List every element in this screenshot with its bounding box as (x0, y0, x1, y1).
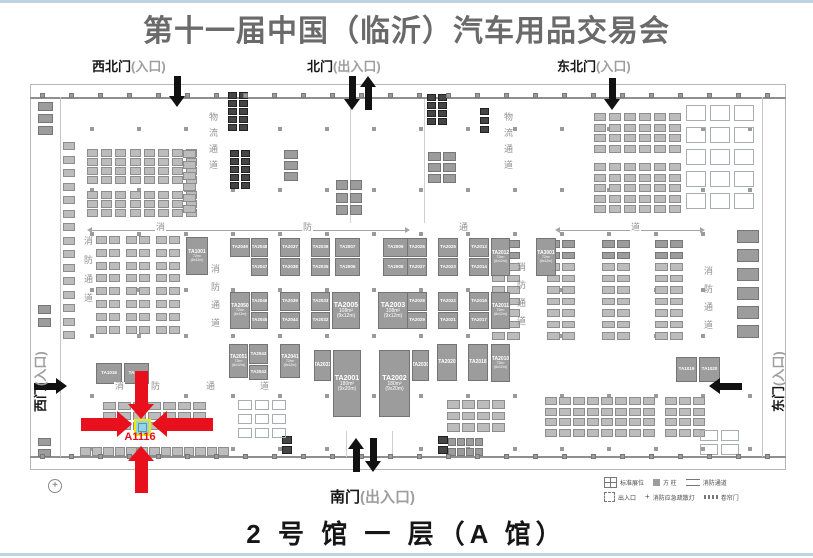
booth-block-cell (101, 200, 112, 208)
booth-block-cell (139, 326, 150, 334)
booth-block-cell (617, 240, 630, 248)
arrow-shaft (365, 87, 372, 110)
arrow-shaft (353, 449, 360, 472)
legend-item: 卷帘门 (704, 493, 739, 502)
booth-block-cell (594, 145, 606, 153)
booth-block-cell (594, 184, 606, 192)
column-marker (372, 188, 376, 192)
booth-block-cell (457, 448, 465, 456)
booth-block-cell (734, 193, 754, 209)
booth-id: TA2047 (252, 265, 268, 270)
booth-block-cell (115, 200, 126, 208)
booth-block-cell (562, 309, 575, 317)
booth-block-cell (602, 286, 615, 294)
booth-block-cell (282, 446, 292, 454)
booth-block-cell (617, 275, 630, 283)
arrow-head (360, 76, 376, 87)
booth-size: (6x12m) (494, 260, 507, 264)
booth-block-cell (169, 287, 180, 295)
booth-block-cell (172, 447, 183, 456)
booth-block-cell (547, 286, 560, 294)
booth-block-cell (562, 275, 575, 283)
booth-block-cell (284, 161, 298, 170)
booth-block-cell (228, 100, 237, 107)
booth-block-cell (178, 402, 191, 410)
booth-block-cell (96, 287, 107, 295)
gate-name: 南门 (330, 489, 360, 506)
booth-block-cell (448, 438, 456, 446)
booth-block-cell (126, 262, 137, 270)
column-marker (325, 188, 329, 192)
column-square-icon (653, 479, 660, 486)
booth-block-cell (654, 205, 666, 213)
booth-block-cell (559, 429, 571, 437)
booth-id: TA2008 (388, 265, 404, 270)
page-title: 第十一届中国（临沂）汽车用品交易会 (0, 6, 813, 50)
booth-block-cell (101, 167, 112, 175)
booth-block-cell (63, 318, 75, 326)
booth-block-cell (272, 400, 286, 410)
booth-block-cell (462, 423, 475, 432)
booth-block-cell (678, 93, 683, 98)
booth-block-cell (228, 92, 237, 99)
entrance-icon (604, 492, 615, 502)
booth-block-cell (38, 318, 51, 327)
booth-block-cell (139, 274, 150, 282)
booth-id: TA2016 (471, 299, 487, 304)
lane-label-char: 通 (458, 223, 469, 232)
column-marker (278, 127, 282, 131)
column-marker (325, 447, 329, 451)
booth-block-cell (670, 240, 683, 248)
booth-block-cell (80, 447, 91, 456)
booth-block-cell (547, 309, 560, 317)
booth-block-cell (156, 236, 167, 244)
booth-block-cell (649, 93, 654, 98)
booth-block-cell (63, 156, 75, 164)
booth-block-cell (594, 174, 606, 182)
lane-label: 消防通道 (515, 262, 528, 338)
booth-block-cell (462, 400, 475, 409)
booth-TA2051: TA205172m²(6x12m) (229, 344, 248, 378)
legend-label: 卷帘门 (721, 493, 739, 502)
booth-block-cell (139, 287, 150, 295)
booth-size: (6x12m) (191, 259, 204, 263)
booth-block-cell (115, 167, 126, 175)
booth-block-cell (545, 429, 557, 437)
booth-block-cell (679, 397, 691, 405)
gate-type: (入口) (771, 351, 786, 386)
booth-block-cell (301, 454, 306, 459)
booth-block-cell (734, 149, 754, 165)
booth-block-cell (330, 93, 335, 98)
booth-block-cell (126, 249, 137, 257)
northeast-gate-label: 东北门(入口) (557, 56, 631, 75)
column-marker (419, 232, 423, 236)
booth-block-cell (617, 286, 630, 294)
booth-block-cell (477, 400, 490, 409)
booth-TA2030: TA2030 (412, 350, 429, 381)
booth-grid-icon (604, 477, 617, 488)
booth-block-cell (169, 262, 180, 270)
booth-block-cell (241, 166, 250, 173)
booth-block-cell (169, 236, 180, 244)
booth-block-cell (643, 429, 655, 437)
booth-block-cell (665, 397, 677, 405)
arrow-shaft (174, 76, 181, 96)
booth-block-cell (103, 447, 114, 456)
booth-id: TA2031 (314, 363, 331, 368)
booth-block-cell (63, 264, 75, 272)
booth-block-cell (649, 454, 654, 459)
east-inner-wall (762, 97, 763, 457)
booth-block-cell (545, 397, 557, 405)
booth-block-cell (443, 174, 456, 183)
booth-block-cell (447, 400, 460, 409)
booth-block-cell (587, 408, 599, 416)
legend-row: 标准展位方 柱消防通道 (604, 477, 794, 488)
booth-id: TA2028 (409, 299, 425, 304)
booth-block-cell (602, 332, 615, 340)
booth-block-cell (38, 305, 51, 314)
booth-block-cell (620, 93, 625, 98)
booth-block-cell (169, 326, 180, 334)
legend-item: 标准展位 (604, 477, 644, 488)
booth-id: TA2039 (282, 299, 298, 304)
booth-TA2002: TA2002180m²(9x20m) (379, 350, 410, 417)
booth-block-cell (101, 209, 112, 217)
booth-id: TA2033 (313, 299, 329, 304)
booth-block-cell (601, 408, 613, 416)
booth-block-cell (629, 429, 641, 437)
booth-TA2044: TA2044 (280, 312, 300, 329)
booth-block-cell (130, 176, 141, 184)
booth-block-cell (573, 429, 585, 437)
booth-block-cell (172, 200, 183, 208)
booth-block-cell (669, 124, 681, 132)
booth-block-cell (130, 200, 141, 208)
booth-block-cell (169, 300, 180, 308)
booth-block-cell (639, 113, 651, 121)
booth-block-cell (101, 158, 112, 166)
northwest-gate-label: 西北门(入口) (92, 56, 166, 75)
booth-block-cell (617, 263, 630, 271)
booth-block-cell (609, 134, 621, 142)
booth-TA2048: TA2048 (251, 238, 268, 257)
booth-TA2006: TA2006 (335, 258, 360, 276)
column-marker (748, 188, 752, 192)
east-gate-label: 东门(入口) (768, 351, 787, 412)
booth-block-cell (243, 93, 248, 98)
booth-TA2035: TA2035 (311, 258, 330, 276)
column-marker (372, 334, 376, 338)
booth-block-cell (591, 93, 596, 98)
booth-block-cell (96, 326, 107, 334)
lane-label: 消防通道 (209, 264, 222, 340)
booth-block-cell (669, 174, 681, 182)
gate-name: 东北门 (557, 59, 596, 74)
booth-block-cell (163, 402, 176, 410)
booth-TA2028: TA2028 (407, 292, 427, 311)
booth-block-cell (654, 195, 666, 203)
booth-block-cell (438, 110, 447, 117)
booth-block-cell (101, 149, 112, 157)
booth-block-cell (629, 408, 641, 416)
column-marker (325, 127, 329, 131)
booth-block-cell (183, 205, 196, 213)
booth-block-cell (609, 113, 621, 121)
booth-block-cell (63, 142, 75, 150)
booth-block-cell (183, 150, 196, 158)
booth-block-cell (587, 429, 599, 437)
booth-block-cell (87, 191, 98, 199)
gate-arrow-up (348, 438, 365, 472)
column-marker (231, 334, 235, 338)
booth-block-cell (183, 194, 196, 202)
booth-block-cell (158, 167, 169, 175)
booth-block-cell (139, 249, 150, 257)
column-marker (372, 232, 376, 236)
column-marker (466, 334, 470, 338)
booth-block-cell (96, 274, 107, 282)
booth-block-cell (475, 93, 480, 98)
floor-plan-page: 第十一届中国（临沂）汽车用品交易会 西北门(入口) 北门(出入口) 东北门(入口… (0, 0, 813, 558)
booth-block-cell (643, 408, 655, 416)
legend-label: 消防通道 (703, 478, 727, 487)
booth-block-cell (443, 163, 456, 172)
booth-block-cell (109, 287, 120, 295)
booth-block-cell (156, 313, 167, 321)
booth-block-cell (438, 102, 447, 109)
column-marker (325, 394, 329, 398)
booth-block-cell (40, 454, 45, 459)
booth-block-cell (156, 287, 167, 295)
booth-block-cell (480, 117, 489, 124)
booth-id: TA2044 (282, 318, 298, 323)
north-corridor-line (424, 99, 425, 223)
arrow-shaft (720, 383, 742, 390)
booth-block-cell (629, 418, 641, 426)
booth-block-cell (686, 193, 706, 209)
arrow-head (117, 411, 132, 437)
booth-block-cell (272, 414, 286, 424)
arrow-shaft (167, 418, 213, 431)
booth-block-cell (144, 149, 155, 157)
lane-label-char: 消 (155, 223, 166, 232)
booth-block-cell (615, 429, 627, 437)
booth-size: (9x12m) (337, 314, 355, 319)
booth-block-cell (617, 309, 630, 317)
column-marker (184, 394, 188, 398)
booth-block-cell (655, 332, 668, 340)
booth-block-cell (63, 223, 75, 231)
booth-block-cell (669, 113, 681, 121)
booth-block-cell (214, 93, 219, 98)
column-marker (654, 232, 658, 236)
column-marker (278, 188, 282, 192)
booth-block-cell (617, 332, 630, 340)
arrow-head (365, 461, 381, 472)
booth-block-cell (161, 447, 172, 456)
booth-block-cell (624, 124, 636, 132)
column-marker (466, 394, 470, 398)
booth-block-cell (765, 454, 770, 459)
booth-id: TA2037 (282, 245, 298, 250)
south-gate-label: 南门(出入口) (330, 486, 415, 507)
booth-block-cell (388, 93, 393, 98)
booth-block-cell (98, 454, 103, 459)
booth-TA2018: TA2018 (468, 344, 488, 381)
booth-block-cell (428, 163, 441, 172)
booth-id: TA2021 (440, 318, 456, 323)
booth-TA2001: TA2001180m²(9x20m) (333, 350, 361, 417)
booth-block-cell (545, 408, 557, 416)
lane-label: 物流通道 (502, 112, 515, 180)
booth-id: TA2014 (471, 265, 487, 270)
arrow-shaft (370, 438, 377, 461)
booth-block-cell (63, 237, 75, 245)
booth-block-cell (504, 93, 509, 98)
booth-block-cell (609, 163, 621, 171)
booth-block-cell (238, 428, 252, 438)
booth-block-cell (156, 274, 167, 282)
booth-TA2026: TA2026 (407, 238, 427, 257)
booth-block-cell (115, 191, 126, 199)
column-marker (278, 394, 282, 398)
north-wall (30, 97, 786, 99)
booth-block-cell (241, 174, 250, 181)
booth-block-cell (655, 309, 668, 317)
gate-name: 东门 (771, 386, 786, 412)
booth-block-cell (533, 454, 538, 459)
booth-block-cell (156, 326, 167, 334)
booth-block-cell (195, 447, 206, 456)
booth-id: TA1019 (679, 367, 695, 372)
booth-id: TA2036 (313, 245, 329, 250)
booth-block-cell (693, 418, 705, 426)
booth-block-cell (172, 191, 183, 199)
booth-block-cell (617, 298, 630, 306)
booth-block-cell (109, 300, 120, 308)
booth-block-cell (172, 158, 183, 166)
booth-block-cell (350, 180, 362, 190)
booth-block-cell (707, 454, 712, 459)
column-marker (231, 188, 235, 192)
booth-block-cell (101, 191, 112, 199)
booth-id: TA2046 (252, 299, 268, 304)
booth-block-cell (562, 321, 575, 329)
booth-block-cell (545, 418, 557, 426)
booth-block-cell (624, 113, 636, 121)
booth-id: TA2025 (440, 245, 456, 250)
booth-block-cell (736, 93, 741, 98)
booth-id: TA2032 (313, 318, 329, 323)
arrow-shaft (135, 371, 148, 404)
booth-TA2016: TA2016 (469, 292, 489, 311)
booth-TA2017: TA2017 (469, 312, 489, 329)
booth-TA2027: TA2027 (407, 258, 427, 276)
booth-block-cell (617, 252, 630, 260)
booth-id: TA2026 (409, 245, 425, 250)
booth-block-cell (336, 193, 348, 203)
arrow-head (709, 378, 720, 394)
booth-size: (9x12m) (384, 314, 402, 319)
booth-TA2046: TA2046 (251, 292, 268, 311)
booth-TA2049: TA2049 (230, 238, 250, 257)
booth-block-cell (654, 184, 666, 192)
booth-block-cell (427, 110, 436, 117)
booth-block-cell (158, 176, 169, 184)
column-marker (419, 394, 423, 398)
booth-block-cell (737, 306, 759, 319)
booth-TA2037: TA2037 (280, 238, 300, 257)
top-border-line (0, 0, 813, 3)
booth-block-cell (96, 300, 107, 308)
booth-block-cell (241, 182, 250, 189)
booth-block-cell (655, 275, 668, 283)
gate-type: (出入口) (360, 489, 415, 506)
booth-block-cell (109, 313, 120, 321)
column-marker (419, 127, 423, 131)
booth-block-cell (594, 134, 606, 142)
column-marker (184, 334, 188, 338)
column-marker (419, 334, 423, 338)
booth-block-cell (670, 252, 683, 260)
booth-block-cell (130, 149, 141, 157)
fire-lane-icon (686, 479, 700, 486)
booth-size: (6x12m) (232, 364, 245, 368)
booth-block-cell (615, 397, 627, 405)
booth-block-cell (126, 313, 137, 321)
booth-block-cell (144, 158, 155, 166)
booth-TA2041: TA204172m²(6x12m) (280, 344, 300, 378)
booth-block-cell (109, 249, 120, 257)
booth-block-cell (639, 174, 651, 182)
booth-block-cell (559, 397, 571, 405)
booth-block-cell (609, 195, 621, 203)
column-marker (231, 447, 235, 451)
booth-size: (9x20m) (385, 387, 403, 392)
booth-block-cell (617, 321, 630, 329)
lane-label-char: 道 (630, 223, 641, 232)
booth-size: (6x12m) (494, 313, 507, 317)
booth-block-cell (115, 209, 126, 217)
booth-block-cell (734, 171, 754, 187)
booth-block-cell (69, 93, 74, 98)
booth-block-cell (665, 429, 677, 437)
booth-block-cell (103, 402, 116, 410)
booth-block-cell (243, 454, 248, 459)
column-marker (372, 394, 376, 398)
booth-id: TA2027 (409, 265, 425, 270)
booth-TA2042: TA2042 (249, 365, 268, 380)
booth-block-cell (230, 182, 239, 189)
booth-block-cell (639, 163, 651, 171)
booth-block-cell (620, 454, 625, 459)
booth-block-cell (562, 286, 575, 294)
booth-block-cell (38, 102, 53, 111)
booth-block-cell (272, 454, 277, 459)
booth-block-cell (63, 291, 75, 299)
booth-block-cell (230, 158, 239, 165)
booth-id: TA2049 (232, 245, 248, 250)
booth-block-cell (466, 438, 474, 446)
column-marker (137, 334, 141, 338)
booth-block-cell (477, 412, 490, 421)
booth-id: TA2048 (252, 245, 268, 250)
gate-type: (入口) (596, 59, 631, 74)
booth-block-cell (130, 209, 141, 217)
